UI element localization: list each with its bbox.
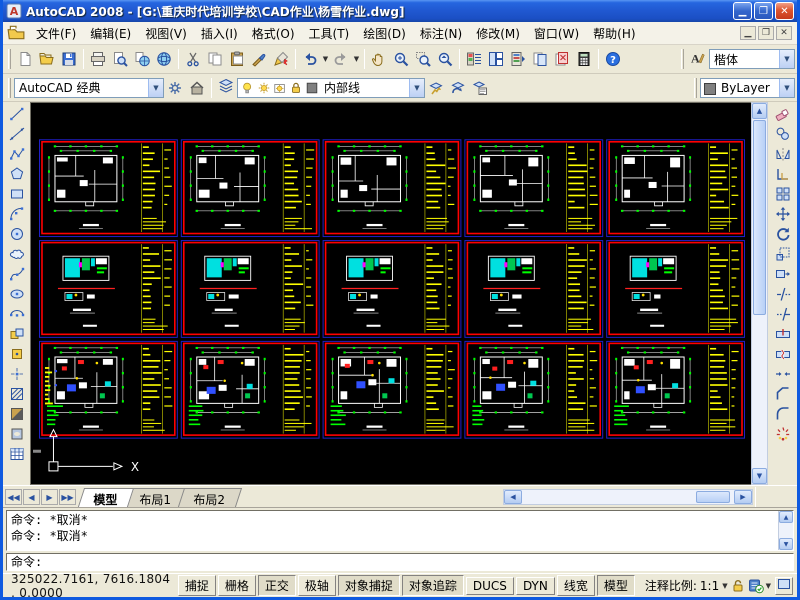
status-toggle-model[interactable]: 模型 bbox=[597, 575, 635, 596]
toolbar-grip[interactable] bbox=[694, 78, 697, 98]
copy-object-button[interactable] bbox=[772, 124, 794, 144]
annotation-scale-label: 注释比例: bbox=[645, 577, 697, 594]
erase-icon bbox=[775, 106, 791, 122]
menu-item-help[interactable]: 帮助(H) bbox=[586, 24, 642, 44]
undo-button[interactable] bbox=[299, 48, 321, 70]
menu-item-edit[interactable]: 编辑(E) bbox=[83, 24, 138, 44]
drawing-sheet bbox=[465, 241, 603, 338]
current-color-value: ByLayer bbox=[717, 81, 779, 95]
undo-dropdown-icon[interactable]: ▼ bbox=[321, 48, 330, 70]
tab-nav-first-button[interactable]: ◀◀ bbox=[5, 489, 22, 505]
scale-button[interactable] bbox=[772, 244, 794, 264]
status-toggle-otrack[interactable]: 对象追踪 bbox=[402, 575, 464, 596]
menu-bar: 文件(F)编辑(E)视图(V)插入(I)格式(O)工具(T)绘图(D)标注(N)… bbox=[3, 22, 797, 45]
trim-button[interactable] bbox=[772, 284, 794, 304]
chevron-down-icon[interactable]: ▼ bbox=[722, 582, 727, 590]
scroll-up-icon[interactable]: ▲ bbox=[752, 103, 767, 119]
zoom-window-icon bbox=[415, 51, 431, 67]
spline-icon bbox=[9, 266, 25, 282]
toolbar-grip[interactable] bbox=[681, 49, 684, 69]
clean-screen-button[interactable] bbox=[775, 577, 793, 595]
copy-icon bbox=[207, 51, 223, 67]
array-icon bbox=[775, 186, 791, 202]
color-combo[interactable]: ByLayer ▼ bbox=[700, 78, 795, 98]
command-scrollbar[interactable]: ▲ ▼ bbox=[778, 511, 793, 550]
coordinates-readout[interactable]: 325022.7161, 7616.1804 , 0.0000 bbox=[7, 572, 176, 600]
redo-dropdown-icon[interactable]: ▼ bbox=[352, 48, 361, 70]
annotation-scale-value: 1:1 bbox=[700, 579, 719, 593]
designcenter-icon bbox=[488, 51, 504, 67]
pan-icon bbox=[371, 51, 387, 67]
tab-nav-next-button[interactable]: ▶ bbox=[41, 489, 58, 505]
drawing-sheet bbox=[465, 341, 603, 438]
table-icon bbox=[9, 446, 25, 462]
drawing-sheet bbox=[39, 341, 177, 438]
scrollbar-thumb[interactable] bbox=[753, 120, 766, 315]
layer-states-icon bbox=[472, 80, 488, 96]
stretch-button[interactable] bbox=[772, 264, 794, 284]
stretch-icon bbox=[775, 266, 791, 282]
bulb-icon[interactable] bbox=[241, 81, 255, 95]
standard-toolbar: ▼▼? A 楷体 ▼ bbox=[3, 45, 797, 74]
layer-previous-icon bbox=[450, 80, 466, 96]
status-toggle-lineweight[interactable]: 线宽 bbox=[557, 575, 595, 596]
gradient-icon bbox=[9, 406, 25, 422]
cut-button[interactable] bbox=[182, 48, 204, 70]
join-icon bbox=[775, 366, 791, 382]
status-toggle-osnap[interactable]: 对象捕捉 bbox=[338, 575, 400, 596]
arc-button[interactable] bbox=[6, 204, 28, 224]
menu-item-window[interactable]: 窗口(W) bbox=[527, 24, 586, 44]
status-toggle-grid[interactable]: 栅格 bbox=[218, 575, 256, 596]
chamfer-icon bbox=[775, 386, 791, 402]
toolbar-separator bbox=[598, 49, 599, 69]
scrollbar-thumb[interactable] bbox=[696, 491, 730, 503]
block-editor-button[interactable] bbox=[270, 48, 292, 70]
drawing-sheet bbox=[607, 341, 745, 438]
toolbar-end-panel bbox=[755, 487, 797, 507]
layer-current-button[interactable] bbox=[425, 77, 447, 99]
drawing-sheet bbox=[465, 140, 603, 237]
sheet-set-manager-icon bbox=[532, 51, 548, 67]
region-icon bbox=[9, 426, 25, 442]
annotation-visibility-icon[interactable] bbox=[748, 578, 764, 594]
array-button[interactable] bbox=[772, 184, 794, 204]
scroll-right-icon[interactable]: ▶ bbox=[734, 490, 752, 504]
svg-text:A: A bbox=[10, 5, 19, 18]
lock-icon[interactable] bbox=[289, 81, 303, 95]
new-icon bbox=[17, 51, 33, 67]
explode-button[interactable] bbox=[772, 424, 794, 444]
drawing-sheet bbox=[323, 241, 461, 338]
swatch-icon[interactable] bbox=[305, 81, 319, 95]
plot-preview-icon bbox=[112, 51, 128, 67]
new-button[interactable] bbox=[14, 48, 36, 70]
chamfer-button[interactable] bbox=[772, 384, 794, 404]
polygon-button[interactable] bbox=[6, 164, 28, 184]
insert-block-icon bbox=[9, 326, 25, 342]
point-button[interactable] bbox=[6, 364, 28, 384]
title-bar: A AutoCAD 2008 - [G:\重庆时代培训学校\CAD作业\杨雪作业… bbox=[3, 0, 797, 22]
sun-vp-icon[interactable] bbox=[273, 81, 287, 95]
window-title: AutoCAD 2008 - [G:\重庆时代培训学校\CAD作业\杨雪作业.d… bbox=[26, 3, 731, 20]
command-input[interactable]: 命令: bbox=[6, 553, 794, 571]
rotate-icon bbox=[775, 226, 791, 242]
status-toggle-ducs[interactable]: DUCS bbox=[466, 577, 514, 595]
hatch-button[interactable] bbox=[6, 384, 28, 404]
current-layer-name: 内部线 bbox=[320, 79, 409, 96]
zoom-realtime-button[interactable] bbox=[390, 48, 412, 70]
zoom-realtime-icon bbox=[393, 51, 409, 67]
toolbar-separator bbox=[295, 49, 296, 69]
layer-combo[interactable]: 内部线 ▼ bbox=[237, 78, 425, 98]
circle-button[interactable] bbox=[6, 224, 28, 244]
tab-model[interactable]: 模型 bbox=[78, 488, 134, 507]
annotation-lock-icon[interactable] bbox=[730, 578, 746, 594]
text-style-combo[interactable]: 楷体 ▼ bbox=[709, 49, 795, 69]
markup-set-manager-icon bbox=[554, 51, 570, 67]
ucs-icon: X bbox=[49, 430, 139, 474]
document-icon bbox=[7, 24, 25, 42]
tab-nav-previous-button[interactable]: ◀ bbox=[23, 489, 40, 505]
mirror-icon bbox=[775, 146, 791, 162]
revision-cloud-icon bbox=[9, 246, 25, 262]
document-window-controls: ▁ ❐ ✕ bbox=[740, 26, 795, 40]
block-editor-icon bbox=[273, 51, 289, 67]
polyline-button[interactable] bbox=[6, 144, 28, 164]
text-style-value: 楷体 bbox=[710, 51, 779, 68]
spline-button[interactable] bbox=[6, 264, 28, 284]
chevron-down-icon[interactable]: ▼ bbox=[779, 79, 794, 97]
autocad-app-icon: A bbox=[6, 3, 22, 19]
help-button[interactable]: ? bbox=[602, 48, 624, 70]
layer-properties-button[interactable] bbox=[215, 77, 237, 99]
construction-line-icon bbox=[9, 126, 25, 142]
properties-button[interactable] bbox=[463, 48, 485, 70]
circle-icon bbox=[9, 226, 25, 242]
status-toggle-polar[interactable]: 极轴 bbox=[298, 575, 336, 596]
chevron-down-icon[interactable]: ▼ bbox=[148, 79, 163, 97]
menu-item-modify[interactable]: 修改(M) bbox=[469, 24, 527, 44]
open-icon bbox=[39, 51, 55, 67]
zoom-previous-button[interactable] bbox=[434, 48, 456, 70]
drawing-sheet bbox=[607, 140, 745, 237]
text-style-button[interactable]: A bbox=[687, 48, 709, 70]
tab-nav-last-button[interactable]: ▶▶ bbox=[59, 489, 76, 505]
status-bar: 325022.7161, 7616.1804 , 0.0000 捕捉栅格正交极轴… bbox=[3, 573, 797, 597]
region-button[interactable] bbox=[6, 424, 28, 444]
paste-icon bbox=[229, 51, 245, 67]
my-workspace-button[interactable] bbox=[186, 77, 208, 99]
gradient-button[interactable] bbox=[6, 404, 28, 424]
zoom-previous-icon bbox=[437, 51, 453, 67]
color-swatch-icon bbox=[702, 81, 716, 95]
break-button[interactable] bbox=[772, 344, 794, 364]
offset-button[interactable] bbox=[772, 164, 794, 184]
status-menu-chevron-icon[interactable]: ▼ bbox=[766, 582, 771, 590]
doc-minimize-button[interactable]: ▁ bbox=[740, 26, 756, 40]
text-style-icon: A bbox=[690, 50, 706, 66]
command-window: 命令: *取消*命令: *取消* ▲ ▼ 命令: bbox=[3, 507, 797, 573]
swatch-icon bbox=[702, 81, 718, 97]
explode-icon bbox=[775, 426, 791, 442]
ellipse-button[interactable] bbox=[6, 284, 28, 304]
3d-dwf-button[interactable] bbox=[153, 48, 175, 70]
markup-set-manager-button[interactable] bbox=[551, 48, 573, 70]
help-icon: ? bbox=[605, 51, 621, 67]
drawing-sheet bbox=[181, 241, 319, 338]
scale-icon bbox=[775, 246, 791, 262]
chevron-down-icon[interactable]: ▼ bbox=[409, 79, 424, 97]
join-button[interactable] bbox=[772, 364, 794, 384]
workspace-value: AutoCAD 经典 bbox=[15, 79, 148, 96]
save-icon bbox=[61, 51, 77, 67]
menu-item-view[interactable]: 视图(V) bbox=[138, 24, 194, 44]
publish-button[interactable] bbox=[131, 48, 153, 70]
annotation-visibility-icon bbox=[748, 578, 764, 594]
designcenter-button[interactable] bbox=[485, 48, 507, 70]
line-button[interactable] bbox=[6, 104, 28, 124]
clean-screen-icon bbox=[776, 576, 792, 592]
make-block-icon bbox=[9, 346, 25, 362]
quick-calc-icon bbox=[576, 51, 592, 67]
status-toggle-ortho[interactable]: 正交 bbox=[258, 575, 296, 596]
move-button[interactable] bbox=[772, 204, 794, 224]
erase-button[interactable] bbox=[772, 104, 794, 124]
move-icon bbox=[775, 206, 791, 222]
fillet-button[interactable] bbox=[772, 404, 794, 424]
menu-item-draw[interactable]: 绘图(D) bbox=[356, 24, 413, 44]
menu-item-format[interactable]: 格式(O) bbox=[245, 24, 302, 44]
toolbar-separator bbox=[364, 49, 365, 69]
drawing-sheet bbox=[607, 241, 745, 338]
ellipse-icon bbox=[9, 286, 25, 302]
my-workspace-icon bbox=[189, 80, 205, 96]
open-button[interactable] bbox=[36, 48, 58, 70]
plot-preview-button[interactable] bbox=[109, 48, 131, 70]
close-button[interactable]: ✕ bbox=[775, 2, 794, 20]
break-at-point-icon bbox=[775, 326, 791, 342]
construction-line-button[interactable] bbox=[6, 124, 28, 144]
toolbar-separator bbox=[178, 49, 179, 69]
tool-palettes-button[interactable] bbox=[507, 48, 529, 70]
fillet-icon bbox=[775, 406, 791, 422]
rotate-button[interactable] bbox=[772, 224, 794, 244]
trim-icon bbox=[775, 286, 791, 302]
svg-text:A: A bbox=[691, 51, 700, 65]
save-button[interactable] bbox=[58, 48, 80, 70]
svg-text:?: ? bbox=[610, 55, 616, 66]
revision-cloud-button[interactable] bbox=[6, 244, 28, 264]
layers-toolbar: AutoCAD 经典 ▼ 内部线 ▼ ByLayer ▼ bbox=[3, 74, 797, 102]
hatch-icon bbox=[9, 386, 25, 402]
copy-object-icon bbox=[775, 126, 791, 142]
ellipse-arc-button[interactable] bbox=[6, 304, 28, 324]
main-area: X ▲ ▼ bbox=[3, 102, 797, 485]
annotation-lock-icon bbox=[730, 578, 746, 594]
line-icon bbox=[9, 106, 25, 122]
match-properties-button[interactable] bbox=[248, 48, 270, 70]
break-at-point-button[interactable] bbox=[772, 324, 794, 344]
extend-button[interactable] bbox=[772, 304, 794, 324]
quick-calc-button[interactable] bbox=[573, 48, 595, 70]
make-block-button[interactable] bbox=[6, 344, 28, 364]
drawing-sheet bbox=[39, 241, 177, 338]
scroll-down-icon[interactable]: ▼ bbox=[779, 538, 793, 550]
3d-dwf-icon bbox=[156, 51, 172, 67]
insert-block-button[interactable] bbox=[6, 324, 28, 344]
extend-icon bbox=[775, 306, 791, 322]
table-button[interactable] bbox=[6, 444, 28, 464]
toolbar-separator bbox=[459, 49, 460, 69]
layer-states-button[interactable] bbox=[469, 77, 491, 99]
polygon-icon bbox=[9, 166, 25, 182]
ucs-x-label: X bbox=[131, 460, 139, 474]
sheet-set-manager-button[interactable] bbox=[529, 48, 551, 70]
menu-item-tools[interactable]: 工具(T) bbox=[302, 24, 357, 44]
scroll-left-icon[interactable]: ◀ bbox=[504, 490, 522, 504]
redo-button[interactable] bbox=[330, 48, 352, 70]
arc-icon bbox=[9, 206, 25, 222]
ellipse-arc-icon bbox=[9, 306, 25, 322]
command-history-line: 命令: *取消* bbox=[11, 528, 774, 544]
restore-button[interactable]: ❐ bbox=[754, 2, 773, 20]
scroll-up-icon[interactable]: ▲ bbox=[779, 511, 793, 523]
copy-button[interactable] bbox=[204, 48, 226, 70]
tab-layout2[interactable]: 布局2 bbox=[178, 488, 242, 507]
rectangle-button[interactable] bbox=[6, 184, 28, 204]
plot-button[interactable] bbox=[87, 48, 109, 70]
gear-icon bbox=[167, 80, 183, 96]
menu-item-dimension[interactable]: 标注(N) bbox=[413, 24, 469, 44]
annotation-scale[interactable]: 注释比例: 1:1 ▼ bbox=[645, 577, 728, 594]
tool-palettes-icon bbox=[510, 51, 526, 67]
doc-close-button[interactable]: ✕ bbox=[776, 26, 792, 40]
toolbar-grip[interactable] bbox=[8, 78, 11, 98]
redo-icon bbox=[333, 51, 349, 67]
drawing-sheet bbox=[181, 140, 319, 237]
status-toggle-snap[interactable]: 捕捉 bbox=[178, 575, 216, 596]
drawing-sheet bbox=[323, 341, 461, 438]
properties-icon bbox=[466, 51, 482, 67]
layers-icon bbox=[218, 78, 234, 94]
drawing-canvas[interactable]: X bbox=[30, 102, 751, 485]
plot-icon bbox=[90, 51, 106, 67]
publish-icon bbox=[134, 51, 150, 67]
autocad-window: A AutoCAD 2008 - [G:\重庆时代培训学校\CAD作业\杨雪作业… bbox=[0, 0, 800, 600]
toolbar-grip[interactable] bbox=[8, 49, 11, 69]
layer-previous-button[interactable] bbox=[447, 77, 469, 99]
zoom-window-button[interactable] bbox=[412, 48, 434, 70]
paste-button[interactable] bbox=[226, 48, 248, 70]
rectangle-icon bbox=[9, 186, 25, 202]
match-properties-icon bbox=[251, 51, 267, 67]
modify-toolbar bbox=[768, 102, 797, 485]
layer-current-icon bbox=[428, 80, 444, 96]
menu-item-file[interactable]: 文件(F) bbox=[29, 24, 83, 44]
minimize-button[interactable]: ▁ bbox=[733, 2, 752, 20]
point-icon bbox=[9, 366, 25, 382]
polyline-icon bbox=[9, 146, 25, 162]
mirror-button[interactable] bbox=[772, 144, 794, 164]
canvas-horizontal-scrollbar[interactable]: ◀ ▶ bbox=[503, 489, 753, 505]
undo-icon bbox=[302, 51, 318, 67]
drawing-sheet bbox=[323, 140, 461, 237]
layout-tab-bar: ◀◀◀▶▶▶ 模型布局1布局2 ◀ ▶ bbox=[3, 485, 797, 507]
drawing-sheet bbox=[39, 140, 177, 237]
sun-icon[interactable] bbox=[257, 81, 271, 95]
command-history-line: 命令: *取消* bbox=[11, 512, 774, 528]
command-history[interactable]: 命令: *取消*命令: *取消* ▲ ▼ bbox=[6, 510, 794, 551]
workspace-combo[interactable]: AutoCAD 经典 ▼ bbox=[14, 78, 164, 98]
canvas-vertical-scrollbar[interactable]: ▲ ▼ bbox=[751, 102, 768, 485]
drawing-sheet bbox=[181, 341, 319, 438]
cut-icon bbox=[185, 51, 201, 67]
doc-restore-button[interactable]: ❐ bbox=[758, 26, 774, 40]
draw-toolbar bbox=[3, 102, 30, 485]
menu-item-insert[interactable]: 插入(I) bbox=[194, 24, 245, 44]
chevron-down-icon[interactable]: ▼ bbox=[779, 50, 794, 68]
offset-icon bbox=[775, 166, 791, 182]
pan-button[interactable] bbox=[368, 48, 390, 70]
break-icon bbox=[775, 346, 791, 362]
toolbar-separator bbox=[83, 49, 84, 69]
gear-button[interactable] bbox=[164, 77, 186, 99]
scroll-down-icon[interactable]: ▼ bbox=[752, 468, 767, 484]
status-toggle-dyn[interactable]: DYN bbox=[516, 577, 555, 595]
